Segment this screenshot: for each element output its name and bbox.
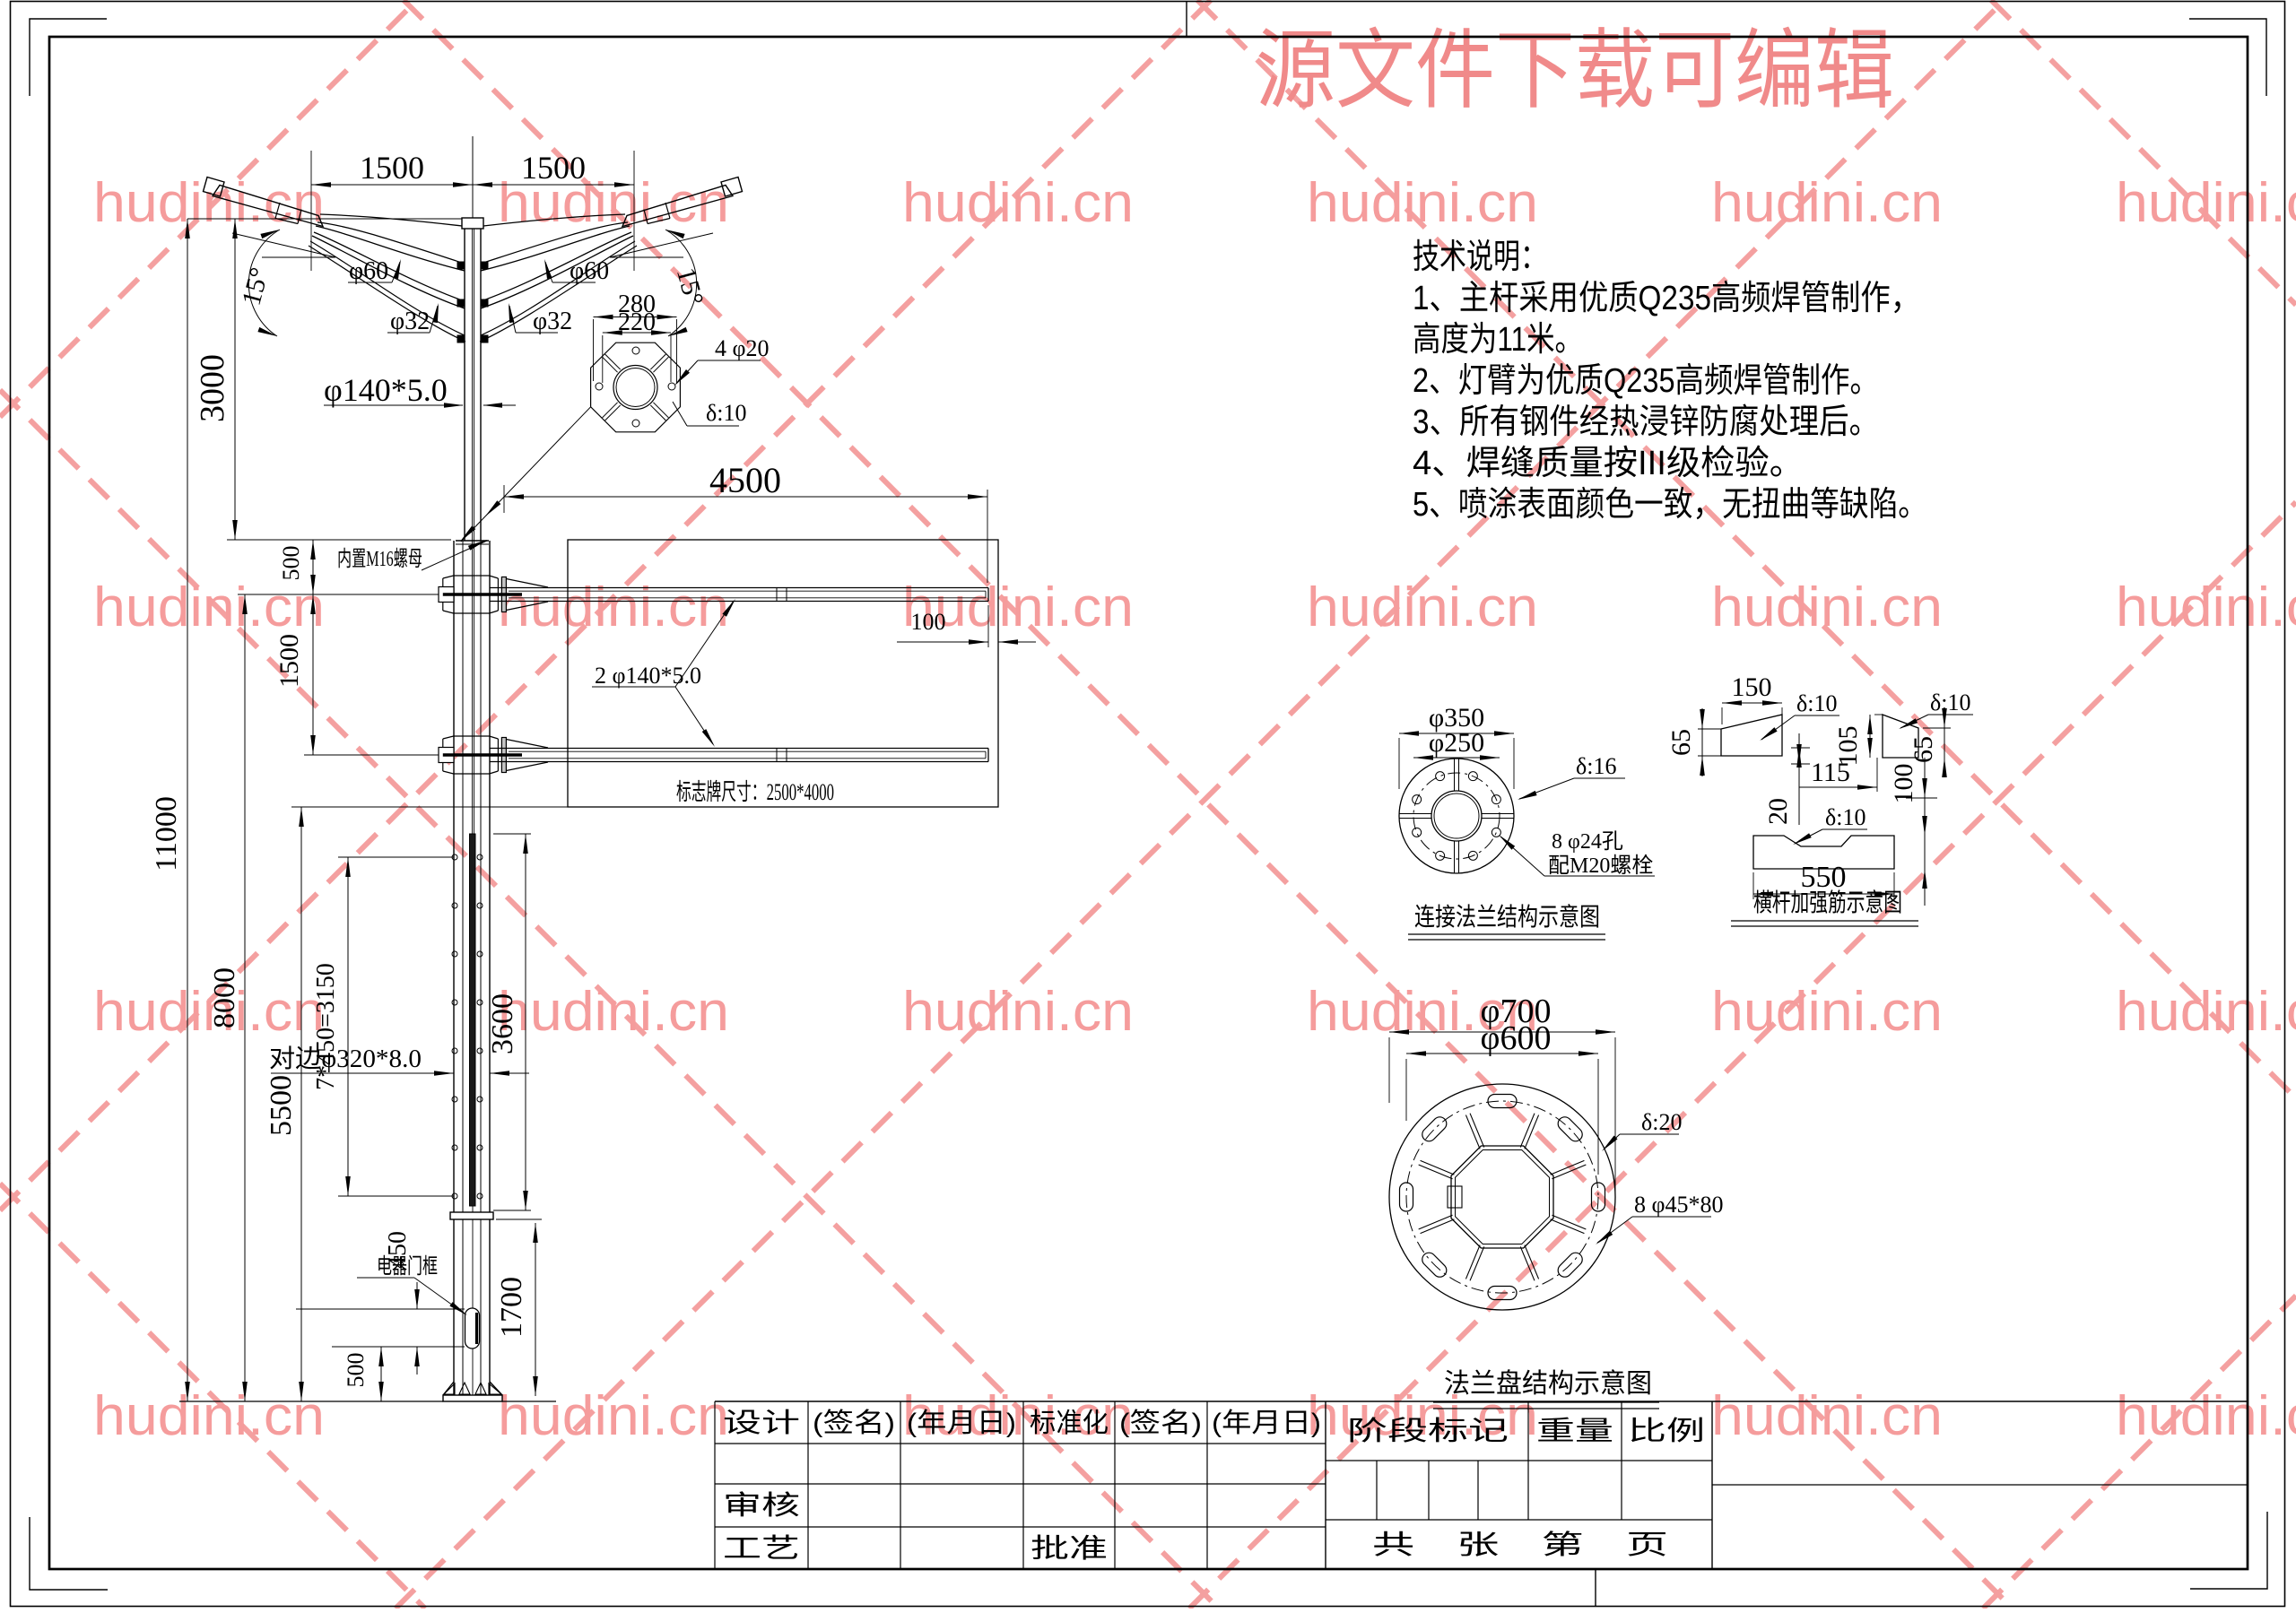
svg-text:法兰盘结构示意图: 法兰盘结构示意图 <box>1444 1369 1652 1399</box>
svg-text:设计: 设计 <box>723 1409 800 1438</box>
svg-text:65: 65 <box>1909 736 1938 763</box>
svg-text:φ250: φ250 <box>1429 728 1484 758</box>
svg-text:内置M16螺母: 内置M16螺母 <box>337 547 422 571</box>
svg-text:2 φ140*5.0: 2 φ140*5.0 <box>595 663 701 689</box>
svg-text:φ60: φ60 <box>349 257 388 285</box>
svg-text:4、焊缝质量按III级检验。: 4、焊缝质量按III级检验。 <box>1413 445 1804 482</box>
svg-text:1500: 1500 <box>274 634 304 688</box>
svg-text:hudini.cn: hudini.cn <box>1711 1385 1943 1447</box>
svg-text:δ:20: δ:20 <box>1641 1109 1682 1135</box>
svg-text:技术说明：: 技术说明： <box>1413 238 1547 276</box>
svg-text:δ:16: δ:16 <box>1576 753 1616 779</box>
svg-text:5500: 5500 <box>265 1075 298 1136</box>
svg-text:φ32: φ32 <box>533 308 572 335</box>
svg-text:8 φ45*80: 8 φ45*80 <box>1634 1192 1724 1218</box>
svg-text:hudini.cn: hudini.cn <box>498 981 729 1043</box>
svg-text:标准化: 标准化 <box>1030 1409 1109 1438</box>
svg-text:(年月日): (年月日) <box>1212 1409 1321 1438</box>
svg-text:220: 220 <box>618 308 656 336</box>
svg-text:100: 100 <box>911 609 946 635</box>
svg-text:配M20螺栓: 配M20螺栓 <box>1548 854 1653 878</box>
svg-text:hudini.cn: hudini.cn <box>1307 577 1538 638</box>
svg-text:(签名): (签名) <box>813 1409 895 1438</box>
svg-text:500: 500 <box>278 546 304 581</box>
svg-text:1、主杆采用优质Q235高频焊管制作，: 1、主杆采用优质Q235高频焊管制作， <box>1413 280 1920 317</box>
svg-text:审核: 审核 <box>723 1491 800 1521</box>
svg-text:3000: 3000 <box>194 354 231 422</box>
svg-text:hudini.cn: hudini.cn <box>1711 577 1943 638</box>
svg-text:(年月日): (年月日) <box>907 1409 1016 1438</box>
svg-text:1700: 1700 <box>495 1277 528 1338</box>
svg-text:500: 500 <box>343 1353 369 1388</box>
svg-text:115: 115 <box>1811 758 1850 787</box>
svg-text:hudini.cn: hudini.cn <box>93 1385 325 1447</box>
svg-text:高度为11米。: 高度为11米。 <box>1413 321 1583 359</box>
svg-text:hudini.cn: hudini.cn <box>902 981 1134 1043</box>
svg-text:11000: 11000 <box>150 796 183 872</box>
svg-text:4500: 4500 <box>709 460 781 500</box>
svg-text:φ600: φ600 <box>1481 1019 1552 1057</box>
svg-text:450: 450 <box>384 1231 412 1269</box>
svg-text:8 φ24孔: 8 φ24孔 <box>1552 829 1623 854</box>
svg-text:横杆加强筋示意图: 横杆加强筋示意图 <box>1753 889 1902 916</box>
svg-text:对边φ320*8.0: 对边φ320*8.0 <box>269 1045 422 1073</box>
svg-text:hudini.cn: hudini.cn <box>1711 981 1943 1043</box>
svg-text:hudini.cn: hudini.cn <box>498 577 729 638</box>
svg-text:3600: 3600 <box>486 993 519 1054</box>
svg-text:δ:10: δ:10 <box>1930 689 1970 715</box>
svg-text:20: 20 <box>1763 798 1793 825</box>
svg-text:φ32: φ32 <box>390 308 430 335</box>
svg-text:8000: 8000 <box>208 967 241 1028</box>
svg-text:hudini.cn: hudini.cn <box>1711 172 1943 234</box>
svg-text:批准: 批准 <box>1031 1534 1108 1564</box>
svg-text:比例: 比例 <box>1628 1417 1705 1446</box>
svg-text:65: 65 <box>1666 729 1696 756</box>
svg-text:工艺: 工艺 <box>723 1534 800 1564</box>
svg-text:共 张 第 页: 共 张 第 页 <box>1372 1531 1668 1560</box>
svg-text:(签名): (签名) <box>1119 1409 1202 1438</box>
svg-text:hudini.cn: hudini.cn <box>2116 981 2296 1043</box>
svg-text:hudini.cn: hudini.cn <box>902 172 1134 234</box>
svg-text:5、喷涂表面颜色一致，无扭曲等缺陷。: 5、喷涂表面颜色一致，无扭曲等缺陷。 <box>1413 486 1927 524</box>
svg-text:φ140*5.0: φ140*5.0 <box>324 372 448 408</box>
svg-text:阶段标记: 阶段标记 <box>1347 1417 1509 1446</box>
svg-text:hudini.cn: hudini.cn <box>2116 577 2296 638</box>
svg-text:δ:10: δ:10 <box>1796 690 1837 716</box>
svg-text:2、灯臂为优质Q235高频焊管制作。: 2、灯臂为优质Q235高频焊管制作。 <box>1413 362 1879 400</box>
svg-text:标志牌尺寸：2500*4000: 标志牌尺寸：2500*4000 <box>676 778 834 805</box>
svg-text:4 φ20: 4 φ20 <box>715 335 770 361</box>
svg-text:hudini.cn: hudini.cn <box>498 1385 729 1447</box>
svg-text:hudini.cn: hudini.cn <box>1307 172 1538 234</box>
svg-text:hudini.cn: hudini.cn <box>93 172 325 234</box>
svg-text:1500: 1500 <box>521 150 586 186</box>
svg-text:φ60: φ60 <box>570 257 609 285</box>
svg-text:hudini.cn: hudini.cn <box>2116 1385 2296 1447</box>
svg-text:hudini.cn: hudini.cn <box>93 577 325 638</box>
svg-text:3、所有钢件经热浸锌防腐处理后。: 3、所有钢件经热浸锌防腐处理后。 <box>1413 403 1879 441</box>
svg-text:1500: 1500 <box>360 150 424 186</box>
svg-text:重量: 重量 <box>1536 1417 1613 1446</box>
svg-text:δ:10: δ:10 <box>1825 804 1865 830</box>
svg-text:hudini.cn: hudini.cn <box>2116 172 2296 234</box>
svg-text:连接法兰结构示意图: 连接法兰结构示意图 <box>1414 903 1600 931</box>
svg-text:100: 100 <box>1889 764 1918 804</box>
svg-text:150: 150 <box>1732 672 1772 702</box>
svg-text:δ:10: δ:10 <box>706 400 746 426</box>
